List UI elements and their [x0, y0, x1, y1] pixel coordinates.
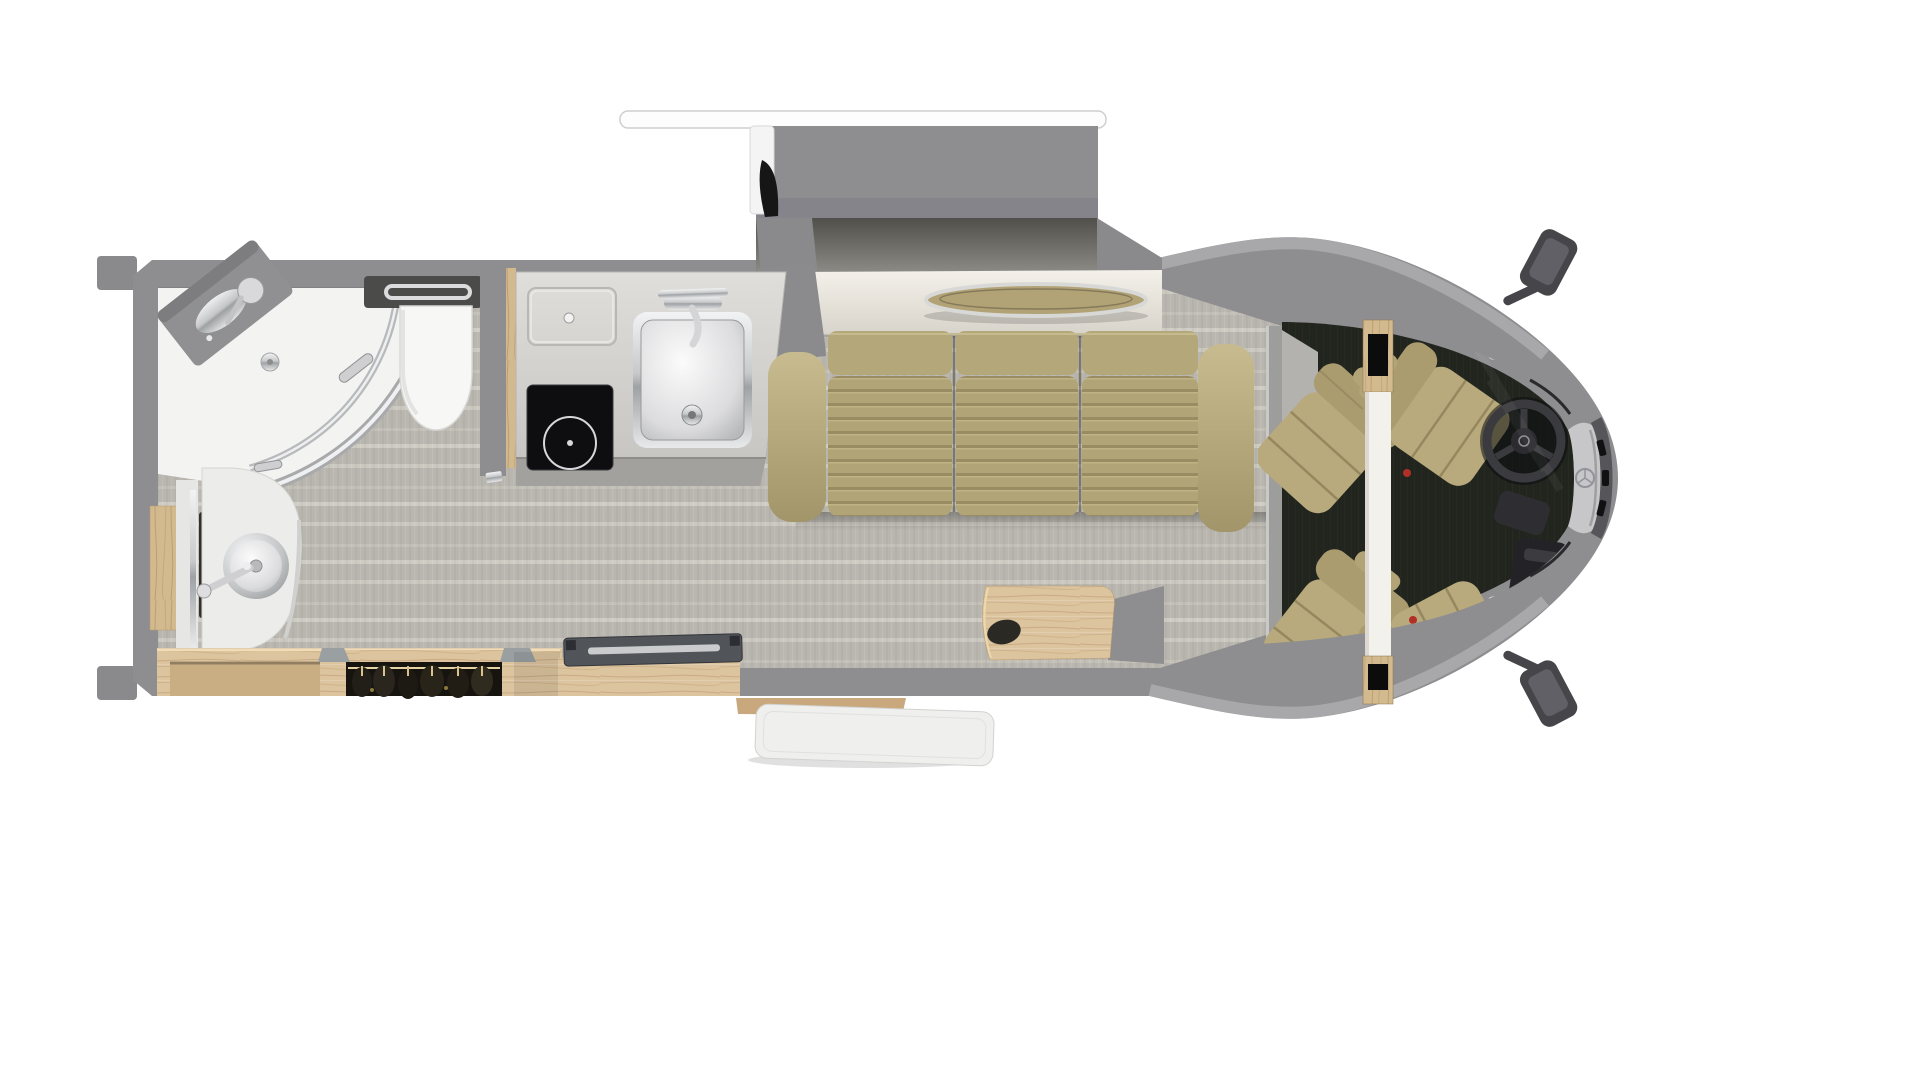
base-cabinet-interior [170, 662, 320, 696]
seat-divider-console [1363, 320, 1393, 704]
vanity-faucet-tip [243, 562, 251, 570]
body-tab-front-left [97, 256, 137, 290]
seatbelt-buckle-2 [1409, 616, 1417, 624]
tv-lift [564, 634, 743, 667]
cooktop-burner-center [567, 440, 573, 446]
shower-drain-center [267, 359, 273, 365]
pocket-door-track [190, 490, 196, 648]
open-entry-door [755, 704, 995, 766]
induction-cooktop [527, 385, 613, 470]
kitchen-wall-wood-trim [506, 268, 516, 468]
toilet [400, 306, 472, 430]
floorplan-svg [0, 0, 1920, 1080]
vanity-wood-backsplash [150, 506, 178, 630]
side-mirror-top [1506, 226, 1581, 319]
floorplan-rendering [0, 0, 1920, 1080]
kitchen-divider-wall [480, 260, 506, 476]
kitchen-drain-center [688, 411, 696, 419]
seatbelt-buckle [1403, 469, 1411, 477]
sofa-armrest-left [768, 352, 826, 522]
awning-rail [620, 111, 1106, 128]
toilet-shelf [364, 276, 482, 308]
flip-lid-knob [564, 313, 574, 323]
sofa-armrest-right [1198, 344, 1254, 532]
sofa-back-cushions [828, 331, 1198, 375]
sofa-seat-cushions [828, 376, 1198, 516]
cabinet-gap-shade [514, 652, 560, 696]
cab-step-highlight [1266, 326, 1269, 638]
side-mirror-bottom [1506, 637, 1581, 730]
vanity-faucet-base [197, 584, 211, 598]
body-tab-rear-left [97, 666, 137, 700]
slide-out-box-shade [756, 198, 1098, 220]
